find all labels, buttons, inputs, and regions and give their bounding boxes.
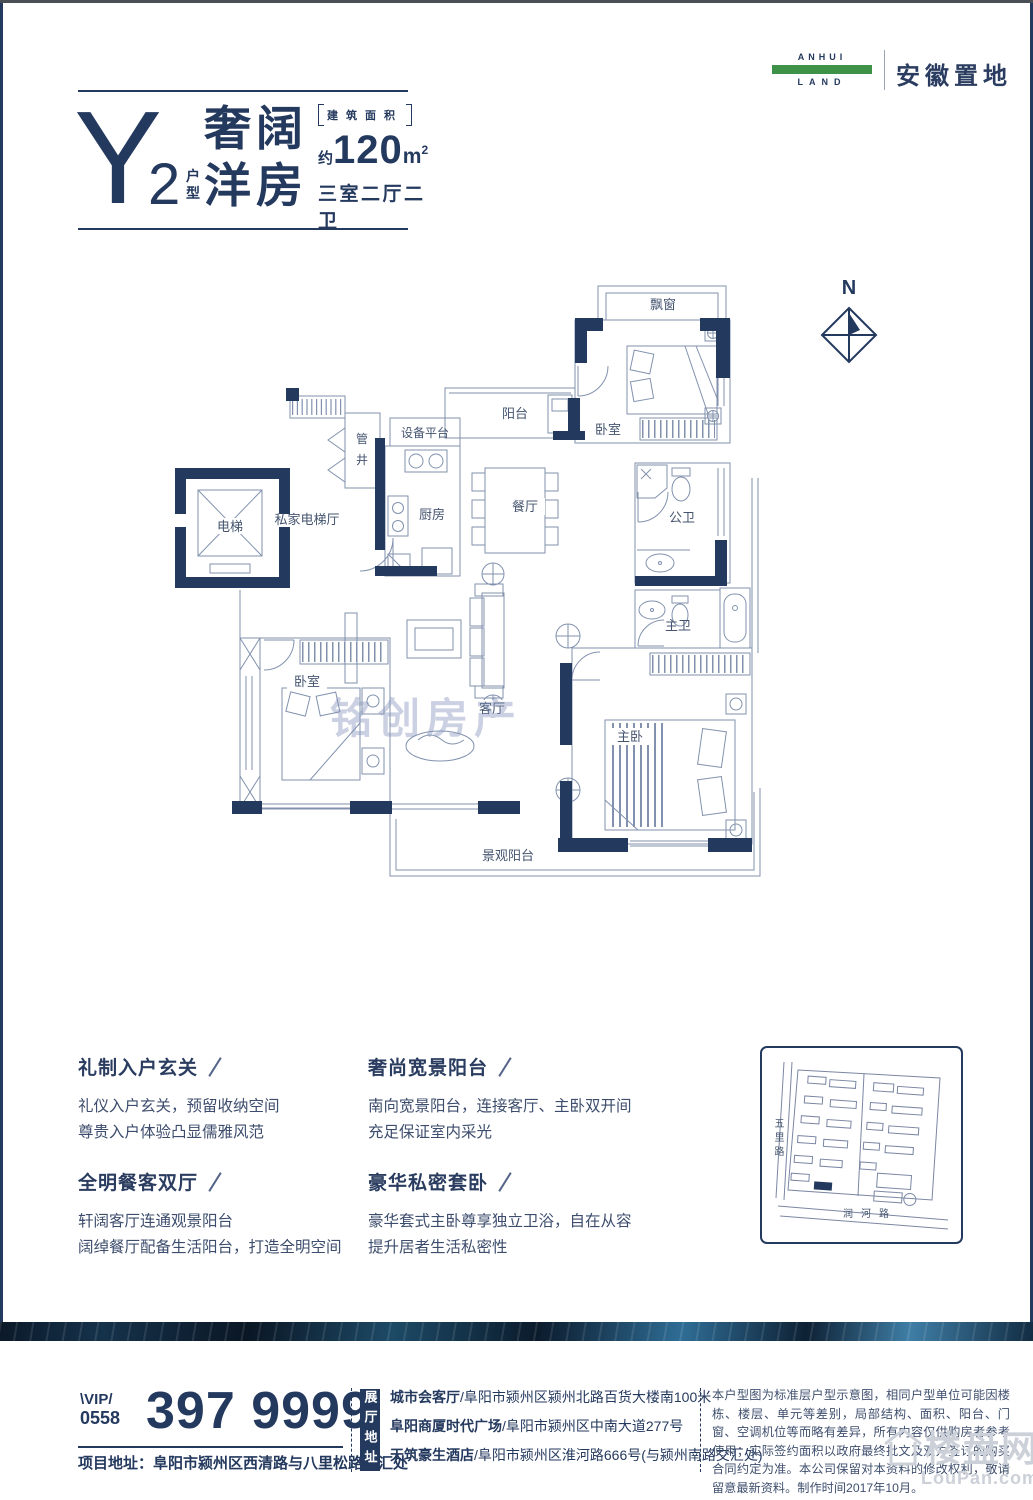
showroom-name: 天筑豪生酒店 <box>390 1447 474 1463</box>
showroom-address: /阜阳市颍州区颍州北路百货大楼南100米 <box>460 1389 711 1405</box>
site-map-highlight-building <box>814 1181 833 1190</box>
room-label-balcony: 阳台 <box>502 406 528 421</box>
brand-logo: ANHUI LAND <box>772 52 872 87</box>
address-divider-line <box>78 1446 343 1448</box>
brand-land-text: LAND <box>772 77 872 87</box>
area-superscript: 2 <box>421 143 428 157</box>
room-label-kitchen: 厨房 <box>419 507 445 522</box>
feature-bright-halls: 全明餐客双厅 轩阔客厅连通观景阳台 阔绰餐厅配备生活阳台，打造全明空间 <box>78 1168 378 1261</box>
feature-wide-balcony: 奢尚宽景阳台 南向宽景阳台，连接客厅、主卧双开间 充足保证室内采光 <box>368 1053 668 1146</box>
room-label-equipment: 设备平台 <box>401 425 449 440</box>
plan-watermark: 铭创房产 <box>330 685 522 746</box>
feature-line: 南向宽景阳台，连接客厅、主卧双开间 <box>368 1094 668 1120</box>
area-approx: 约 <box>318 147 333 168</box>
slash-decoration <box>208 1172 221 1192</box>
showroom-row: 城市会客厅/阜阳市颍州区颍州北路百货大楼南100米 <box>390 1387 690 1407</box>
north-label: N <box>842 277 856 299</box>
room-label-elevator-hall: 私家电梯厅 <box>274 512 339 527</box>
feature-line: 豪华套式主卧尊享独立卫浴，自在从容 <box>368 1209 668 1235</box>
showroom-name: 阜阳商厦时代广场 <box>390 1418 502 1434</box>
showroom-row: 阜阳商厦时代广场/阜阳市颍州区中南大道277号 <box>390 1416 690 1436</box>
north-arrow: N <box>812 268 887 368</box>
feature-line: 轩阔客厅连通观景阳台 <box>78 1209 378 1235</box>
room-label-shaft-1: 管 <box>356 431 368 446</box>
slash-decoration <box>498 1172 511 1192</box>
area-block: 建筑面积 约 120 m 2 三室二厅二卫 <box>318 104 438 233</box>
showroom-row: 天筑豪生酒店/阜阳市颍州区淮河路666号(与颍州南路交汇处) <box>390 1445 690 1465</box>
feature-line: 尊贵入户体验凸显儒雅风范 <box>78 1120 378 1146</box>
floor-plan-svg: 飘窗 阳台 设备平台 管 井 卧室 电梯 私家电梯厅 厨房 餐厅 公卫 主卫 卧… <box>160 268 805 913</box>
feature-title: 全明餐客双厅 <box>78 1168 198 1195</box>
unit-number: 2 <box>148 156 180 214</box>
feature-entry-foyer: 礼制入户玄关 礼仪入户玄关，预留收纳空间 尊贵入户体验凸显儒雅风范 <box>78 1053 378 1146</box>
area-bracket: 建筑面积 <box>318 104 412 126</box>
feature-title: 豪华私密套卧 <box>368 1168 488 1195</box>
top-border-line <box>0 0 1033 3</box>
left-border-line <box>0 3 3 1341</box>
room-label-dining: 餐厅 <box>512 499 538 514</box>
feature-title: 奢尚宽景阳台 <box>368 1053 488 1080</box>
showroom-address: /阜阳市颍州区中南大道277号 <box>502 1418 683 1434</box>
phone-number: 397 9999 <box>146 1381 371 1441</box>
room-label-bedroom-top: 卧室 <box>595 422 621 437</box>
feature-title: 礼制入户玄关 <box>78 1053 198 1080</box>
loupan-domain: LouPan.com <box>881 1468 1033 1489</box>
feature-master-suite: 豪华私密套卧 豪华套式主卧尊享独立卫浴，自在从容 提升居者生活私密性 <box>368 1168 668 1261</box>
room-label-elevator: 电梯 <box>217 519 243 534</box>
slash-decoration <box>498 1057 511 1077</box>
room-label-master-bedroom: 主卧 <box>617 729 643 744</box>
showroom-label-bar: 展厅地址 <box>360 1389 380 1471</box>
dashed-divider-right <box>700 1388 701 1472</box>
slash-decoration <box>208 1057 221 1077</box>
headline: 奢阔 洋房 <box>204 100 308 214</box>
loupan-name: 楼盘网 <box>925 1420 1033 1472</box>
flyer-page: ANHUI LAND 安徽置地 Y 2 户 型 奢阔 洋房 建筑面积 约 120… <box>0 0 1033 1500</box>
area-unit: m <box>403 145 422 169</box>
map-road-bottom-label: 润河路 <box>843 1205 897 1220</box>
unit-type-label: 户 型 <box>186 168 200 202</box>
unit-char-2: 型 <box>186 185 200 202</box>
headline-line1: 奢阔 <box>204 100 308 157</box>
area-value: 120 <box>333 130 403 170</box>
headline-line2: 洋房 <box>204 157 308 214</box>
feature-line: 提升居者生活私密性 <box>368 1235 668 1261</box>
unit-char-1: 户 <box>186 168 200 185</box>
brand-divider <box>884 50 885 90</box>
loupan-logo-icon <box>881 1424 925 1468</box>
showroom-list: 城市会客厅/阜阳市颍州区颍州北路百货大楼南100米 阜阳商厦时代广场/阜阳市颍州… <box>390 1387 690 1474</box>
map-road-left-label: 五里路 <box>770 1118 785 1160</box>
room-label-bedroom-left: 卧室 <box>294 674 320 689</box>
showroom-name: 城市会客厅 <box>390 1389 460 1405</box>
room-label-bath-master: 主卫 <box>665 618 691 633</box>
brand-name-cn: 安徽置地 <box>896 56 1012 91</box>
vip-code: 0558 <box>80 1409 120 1428</box>
feature-line: 礼仪入户玄关，预留收纳空间 <box>78 1094 378 1120</box>
feature-line: 充足保证室内采光 <box>368 1120 668 1146</box>
plan-walls <box>175 318 752 852</box>
room-label-bath-public: 公卫 <box>669 510 695 525</box>
dashed-divider-left <box>351 1388 352 1472</box>
vip-block: \VIP/ 0558 <box>80 1390 120 1428</box>
project-address: 项目地址：阜阳市颍州区西清路与八里松路交汇处 <box>78 1452 408 1473</box>
room-layout: 三室二厅二卫 <box>318 179 438 233</box>
area-number: 约 120 m 2 <box>318 130 438 170</box>
brand-green-bar <box>772 65 872 74</box>
room-label-view-balcony: 景观阳台 <box>482 848 534 863</box>
feature-line: 阔绰餐厅配备生活阳台，打造全明空间 <box>78 1235 378 1261</box>
brand-anhui-text: ANHUI <box>772 52 872 62</box>
wave-band <box>0 1322 1033 1341</box>
room-label-shaft-2: 井 <box>356 453 368 467</box>
room-label-bay-window: 飘窗 <box>650 297 676 312</box>
vip-label: \VIP/ <box>80 1390 120 1409</box>
loupan-watermark: 楼盘网 LouPan.com <box>881 1420 1033 1489</box>
